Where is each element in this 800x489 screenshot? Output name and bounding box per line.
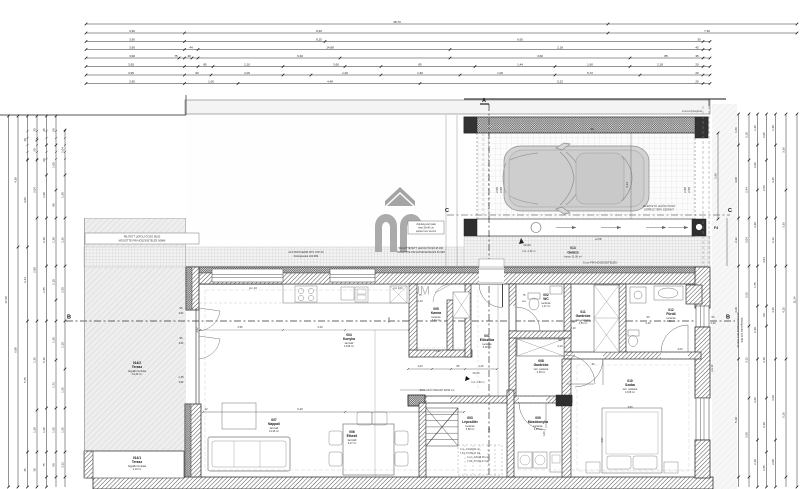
svg-text:2,18: 2,18 — [557, 45, 563, 49]
svg-text:3,90: 3,90 — [129, 37, 135, 41]
svg-text:5,75: 5,75 — [23, 377, 27, 383]
svg-text:3,57: 3,57 — [600, 437, 604, 443]
svg-text:2,10: 2,10 — [244, 62, 250, 66]
svg-text:96: 96 — [179, 306, 183, 310]
svg-text:13,96 m²: 13,96 m² — [344, 345, 354, 348]
svg-text:Terasz: Terasz — [132, 365, 143, 369]
svg-text:építész terv szerint: építész terv szerint — [416, 230, 436, 233]
svg-text:3,38 m²: 3,38 m² — [537, 371, 546, 374]
svg-text:19,30 m²: 19,30 m² — [132, 373, 142, 376]
svg-text:Gardróbe: Gardróbe — [534, 363, 549, 367]
svg-text:C: C — [445, 208, 449, 214]
svg-text:14,46 m²: 14,46 m² — [269, 430, 279, 433]
svg-text:Konyha: Konyha — [343, 337, 355, 341]
svg-text:44: 44 — [189, 45, 193, 49]
svg-text:7,30: 7,30 — [704, 29, 710, 33]
svg-text:2,50: 2,50 — [687, 187, 691, 193]
svg-text:1,38: 1,38 — [771, 125, 775, 131]
svg-text:1,00: 1,00 — [208, 79, 214, 83]
svg-text:3,18: 3,18 — [762, 357, 766, 363]
svg-text:45: 45 — [695, 45, 699, 49]
svg-text:2,62: 2,62 — [745, 292, 749, 298]
svg-text:3,06: 3,06 — [23, 197, 27, 203]
svg-text:4,15: 4,15 — [782, 307, 786, 313]
svg-text:30: 30 — [33, 128, 37, 132]
svg-text:2,04: 2,04 — [33, 187, 37, 193]
svg-text:C: C — [728, 208, 732, 214]
svg-text:3,12: 3,12 — [745, 357, 749, 363]
svg-text:3,60: 3,60 — [771, 395, 775, 401]
svg-text:B: B — [67, 315, 71, 321]
svg-text:3,00: 3,00 — [677, 347, 683, 351]
svg-text:6,20: 6,20 — [297, 407, 303, 411]
svg-text:20: 20 — [33, 148, 37, 152]
svg-text:3,60: 3,60 — [537, 54, 543, 58]
svg-text:2,50: 2,50 — [61, 287, 65, 293]
svg-text:3,36: 3,36 — [782, 222, 786, 228]
svg-text:2,40: 2,40 — [710, 321, 716, 325]
svg-text:3,63 m²: 3,63 m² — [534, 428, 543, 431]
svg-text:1,20: 1,20 — [52, 337, 56, 343]
svg-text:F4: F4 — [714, 226, 718, 230]
svg-text:2,30: 2,30 — [753, 327, 757, 333]
svg-text:3,90: 3,90 — [129, 54, 135, 58]
svg-text:Szoba: Szoba — [625, 383, 635, 387]
svg-text:4,22: 4,22 — [487, 427, 491, 433]
svg-text:ALSTROTHERM XPS TOP 30: ALSTROTHERM XPS TOP 30 — [736, 312, 740, 348]
svg-text:1,44: 1,44 — [517, 62, 523, 66]
svg-text:2,16 m²: 2,16 m² — [133, 468, 142, 471]
svg-text:1,30: 1,30 — [61, 192, 65, 198]
svg-text:1,40: 1,40 — [542, 431, 546, 437]
svg-text:1,00: 1,00 — [417, 364, 423, 368]
svg-text:7,04: TV=90,47 fok: 7,04: TV=90,47 fok — [467, 459, 490, 463]
svg-text:1,35: 1,35 — [178, 375, 184, 379]
svg-text:88: 88 — [52, 203, 56, 207]
svg-text:bm: 2,92 m: bm: 2,92 m — [523, 249, 536, 253]
svg-text:6,30: 6,30 — [297, 54, 303, 58]
svg-text:240: 240 — [179, 341, 184, 345]
svg-text:1,35: 1,35 — [753, 125, 757, 131]
svg-text:1,35: 1,35 — [33, 357, 37, 363]
svg-text:4,38: 4,38 — [14, 177, 18, 183]
svg-text:2,56: 2,56 — [762, 185, 766, 191]
svg-text:1,47 m²: 1,47 m² — [542, 305, 551, 308]
svg-text:B: B — [726, 315, 730, 321]
svg-text:1,00: 1,00 — [497, 71, 503, 75]
svg-text:40: 40 — [23, 138, 27, 142]
svg-text:±0,00: ±0,00 — [473, 371, 480, 375]
svg-text:3,12: 3,12 — [61, 462, 65, 468]
svg-text:1,00: 1,00 — [52, 162, 56, 168]
svg-text:90: 90 — [42, 158, 46, 162]
svg-text:2,10: 2,10 — [557, 344, 563, 348]
svg-text:3,00: 3,00 — [734, 177, 738, 183]
svg-text:3,60: 3,60 — [333, 62, 339, 66]
svg-text:3,25: 3,25 — [771, 177, 775, 183]
svg-text:90: 90 — [762, 313, 766, 317]
svg-text:4,10: 4,10 — [734, 307, 738, 313]
svg-text:75: 75 — [174, 54, 178, 58]
svg-text:5,38 m²: 5,38 m² — [483, 346, 492, 349]
svg-text:5 cm PIR HŐSZIGETELÉS: 5 cm PIR HŐSZIGETELÉS — [583, 260, 617, 265]
svg-text:38,70: 38,70 — [393, 20, 401, 24]
svg-text:3,80: 3,80 — [627, 405, 633, 409]
svg-text:Fürdő: Fürdő — [666, 312, 675, 316]
svg-text:1,10: 1,10 — [61, 342, 65, 348]
svg-text:pm 40: pm 40 — [249, 286, 257, 290]
svg-text:1,55: 1,55 — [762, 465, 766, 471]
svg-text:2,04: 2,04 — [745, 237, 749, 243]
svg-text:2,12: 2,12 — [771, 237, 775, 243]
svg-text:30: 30 — [33, 468, 37, 472]
svg-text:45: 45 — [23, 468, 27, 472]
svg-text:Kamra: Kamra — [431, 311, 441, 315]
svg-text:2,62: 2,62 — [195, 327, 199, 333]
svg-text:85: 85 — [418, 62, 422, 66]
svg-text:85: 85 — [664, 54, 668, 58]
svg-text:240: 240 — [179, 311, 184, 315]
svg-text:1,26: 1,26 — [478, 364, 484, 368]
svg-text:14,88: 14,88 — [326, 45, 334, 49]
svg-text:4,22: 4,22 — [435, 349, 441, 353]
svg-text:1,04: 1,04 — [61, 147, 65, 153]
svg-text:6,60: 6,60 — [517, 37, 523, 41]
svg-text:b.sz.: 18x28,00 cm: b.sz.: 18x28,00 cm — [467, 455, 489, 459]
svg-text:30: 30 — [590, 127, 594, 131]
svg-text:1,08: 1,08 — [42, 192, 46, 198]
svg-text:4,14: 4,14 — [625, 182, 629, 188]
svg-text:2,22: 2,22 — [734, 237, 738, 243]
svg-text:1,72: 1,72 — [52, 382, 56, 388]
svg-text:Garázs: Garázs — [567, 251, 578, 255]
svg-text:013: 013 — [570, 246, 576, 250]
svg-text:45: 45 — [42, 128, 46, 132]
svg-text:90: 90 — [52, 128, 56, 132]
svg-text:1,55: 1,55 — [42, 287, 46, 293]
svg-text:FFG: FFG — [522, 301, 527, 303]
svg-text:17,28: 17,28 — [4, 296, 8, 304]
svg-text:35: 35 — [695, 54, 699, 58]
svg-text:2,95: 2,95 — [237, 325, 243, 329]
svg-text:2,40: 2,40 — [645, 321, 651, 325]
svg-text:személybejárat: személybejárat — [682, 109, 702, 113]
svg-text:4,15: 4,15 — [771, 307, 775, 313]
svg-text:5,10: 5,10 — [734, 417, 738, 423]
svg-text:2,18: 2,18 — [657, 62, 663, 66]
svg-text:3,01 m²: 3,01 m² — [667, 320, 676, 323]
svg-text:2,48: 2,48 — [42, 237, 46, 243]
svg-text:Előszoba: Előszoba — [480, 338, 495, 342]
svg-text:3,50: 3,50 — [745, 432, 749, 438]
svg-text:4,48: 4,48 — [327, 79, 333, 83]
svg-text:2,44: 2,44 — [23, 277, 27, 283]
svg-text:2,26: 2,26 — [61, 237, 65, 243]
svg-text:1,60: 1,60 — [587, 62, 593, 66]
svg-text:hőszigetelés 100 MM: hőszigetelés 100 MM — [740, 318, 744, 343]
svg-text:30: 30 — [187, 54, 191, 58]
svg-text:beton 21,06 m²: beton 21,06 m² — [564, 255, 582, 259]
svg-text:WC: WC — [543, 297, 549, 301]
svg-text:±0,00: ±0,00 — [523, 243, 531, 247]
svg-text:1,35: 1,35 — [61, 387, 65, 393]
svg-text:30: 30 — [697, 37, 701, 41]
svg-text:3,30: 3,30 — [753, 222, 757, 228]
svg-text:2,08: 2,08 — [771, 459, 775, 465]
svg-text:3,68 m²: 3,68 m² — [466, 428, 475, 431]
svg-text:75: 75 — [42, 463, 46, 467]
svg-text:8,20: 8,20 — [316, 29, 322, 33]
svg-text:90: 90 — [195, 71, 199, 75]
svg-text:13,08 m²: 13,08 m² — [625, 391, 635, 394]
svg-text:7,04: TV=85,47 fok: 7,04: TV=85,47 fok — [460, 452, 481, 455]
svg-text:2,02: 2,02 — [753, 162, 757, 168]
svg-text:6,27 m²: 6,27 m² — [348, 442, 357, 445]
svg-text:3,41 m²: 3,41 m² — [432, 319, 441, 322]
svg-text:2,56 m²: 2,56 m² — [579, 322, 588, 325]
svg-text:20: 20 — [695, 71, 699, 75]
svg-text:pm 100: pm 100 — [393, 286, 403, 290]
svg-text:1,10: 1,10 — [52, 279, 56, 285]
svg-text:Gardróbe: Gardróbe — [576, 314, 591, 318]
svg-text:1,35: 1,35 — [42, 427, 46, 433]
svg-text:2,80: 2,80 — [33, 267, 37, 273]
svg-text:3,62: 3,62 — [753, 397, 757, 403]
svg-text:2,40: 2,40 — [762, 422, 766, 428]
svg-text:96: 96 — [179, 336, 183, 340]
svg-text:3,90: 3,90 — [129, 45, 135, 49]
svg-text:2,00: 2,00 — [244, 71, 250, 75]
svg-text:5,26: 5,26 — [782, 412, 786, 418]
svg-text:1,38: 1,38 — [52, 237, 56, 243]
svg-text:2,10: 2,10 — [753, 459, 757, 465]
svg-text:1,66: 1,66 — [714, 173, 718, 179]
svg-text:240: 240 — [179, 380, 184, 384]
svg-text:A: A — [482, 98, 486, 104]
svg-text:2,80: 2,80 — [499, 187, 503, 193]
svg-text:3,90: 3,90 — [129, 79, 135, 83]
svg-text:1,35: 1,35 — [61, 427, 65, 433]
svg-text:2,10: 2,10 — [570, 326, 576, 330]
svg-text:11,24: 11,24 — [793, 296, 797, 303]
svg-text:1,60: 1,60 — [417, 71, 423, 75]
svg-text:2,20: 2,20 — [317, 325, 323, 329]
svg-text:3,95: 3,95 — [128, 62, 134, 66]
svg-text:2,10: 2,10 — [417, 299, 423, 303]
svg-text:1,28: 1,28 — [33, 427, 37, 433]
svg-text:1,00: 1,00 — [342, 71, 348, 75]
svg-text:pm 90: pm 90 — [710, 364, 714, 372]
svg-text:Terasz: Terasz — [132, 460, 143, 464]
svg-text:5,15: 5,15 — [42, 357, 46, 363]
svg-text:6,88: 6,88 — [14, 347, 18, 353]
svg-text:3,84: 3,84 — [762, 257, 766, 263]
svg-text:20: 20 — [695, 62, 699, 66]
svg-text:b.m.: 19x28,00 cm: b.m.: 19x28,00 cm — [460, 448, 480, 451]
svg-text:2,10: 2,10 — [745, 132, 749, 138]
svg-text:3,90: 3,90 — [129, 29, 135, 33]
svg-text:3,36: 3,36 — [782, 147, 786, 153]
svg-text:Nappali: Nappali — [268, 422, 280, 426]
svg-text:3,95: 3,95 — [128, 71, 134, 75]
svg-text:Étkező: Étkező — [347, 433, 358, 438]
svg-text:hőszigetelés 100 MM: hőszigetelés 100 MM — [294, 254, 319, 258]
svg-text:+2,08: +2,08 — [595, 237, 602, 241]
svg-text:2,44: 2,44 — [745, 187, 749, 193]
svg-text:1,35: 1,35 — [52, 427, 56, 433]
svg-text:20: 20 — [695, 79, 699, 83]
svg-text:ALSTROTHERM XPS TOP 30: ALSTROTHERM XPS TOP 30 — [288, 250, 324, 254]
svg-text:1,75: 1,75 — [753, 282, 757, 288]
svg-text:85: 85 — [203, 62, 207, 66]
svg-text:Mosókonyha: Mosókonyha — [528, 420, 548, 424]
svg-text:5,18: 5,18 — [387, 317, 391, 323]
svg-text:5,72: 5,72 — [587, 71, 593, 75]
svg-text:1,66: 1,66 — [734, 127, 738, 133]
svg-text:Lépcsőtér: Lépcsőtér — [462, 420, 478, 424]
svg-text:90: 90 — [52, 463, 56, 467]
svg-text:2,05: 2,05 — [762, 132, 766, 138]
svg-text:5,22: 5,22 — [557, 79, 563, 83]
svg-text:8,25: 8,25 — [316, 37, 322, 41]
